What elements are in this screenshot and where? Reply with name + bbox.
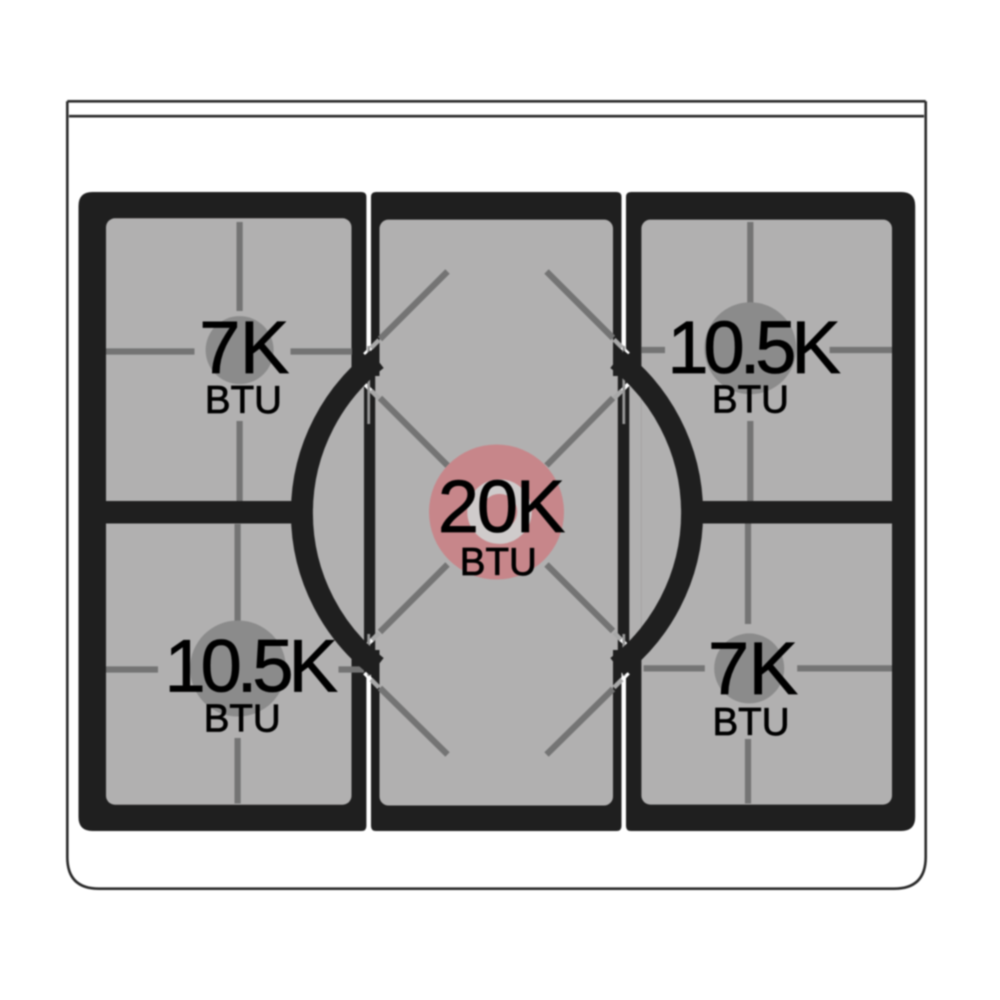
svg-text:7K: 7K (199, 306, 289, 389)
svg-text:BTU: BTU (460, 541, 537, 584)
svg-text:20K: 20K (438, 465, 565, 548)
svg-text:BTU: BTU (205, 379, 282, 422)
svg-text:BTU: BTU (204, 698, 281, 741)
svg-text:10.5K: 10.5K (165, 625, 338, 708)
svg-text:BTU: BTU (712, 379, 789, 422)
svg-text:BTU: BTU (713, 701, 790, 744)
svg-text:10.5K: 10.5K (667, 306, 840, 389)
svg-text:7K: 7K (708, 627, 798, 710)
